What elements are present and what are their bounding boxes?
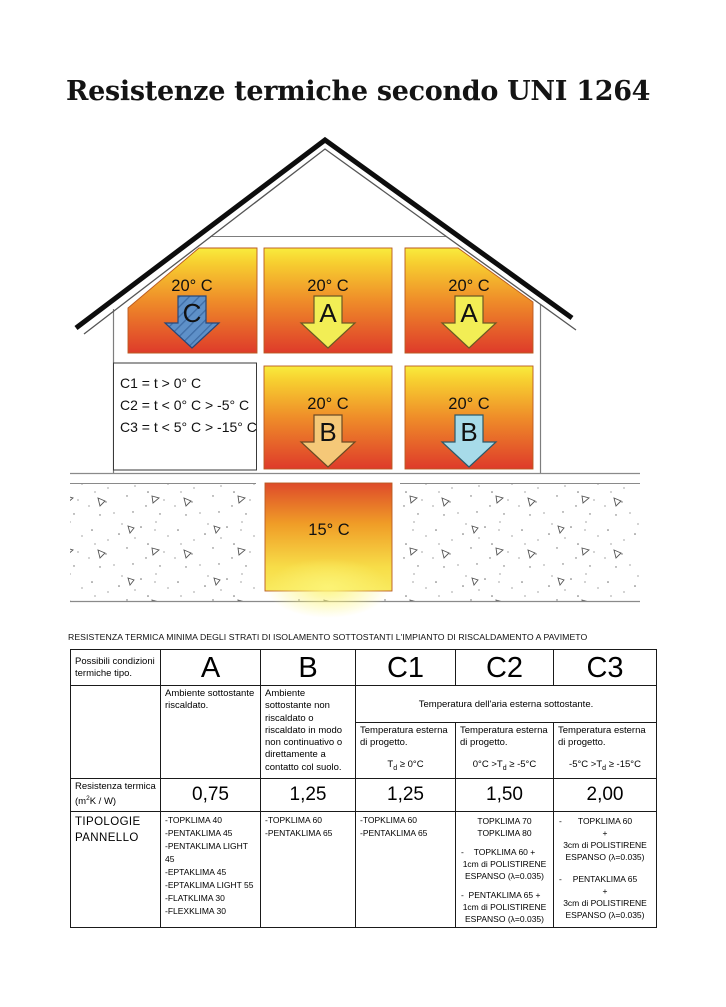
arrow-a1-letter: A	[319, 298, 337, 328]
list-line: -FLATKLIMA 30	[165, 892, 256, 905]
list-line: ESPANSO (λ=0.035)	[558, 909, 652, 921]
legend-line-c2: C2 = t < 0° C > -5° C	[120, 397, 249, 413]
resistance-table: Possibili condizioni termiche tipo. A B …	[70, 649, 657, 928]
temp-mid-right: 20° C	[448, 395, 490, 413]
list-line: +	[558, 885, 652, 897]
list-line: ESPANSO (λ=0.035)	[460, 913, 549, 925]
condition-b: Ambiente sottostante non riscaldato o ri…	[261, 686, 356, 779]
typologies-c3: - TOPKLIMA 60+3cm di POLISTIRENEESPANSO …	[554, 812, 657, 928]
cellar-temp-label: 15° C	[308, 521, 350, 539]
list-line: TOPKLIMA 70	[460, 815, 549, 827]
c3-label: Temperatura esterna di progetto.	[558, 725, 652, 749]
list-line: 3cm di POLISTIRENE	[558, 897, 652, 909]
condition-c3: Temperatura esterna di progetto. -5°C >T…	[554, 723, 657, 779]
list-line: TOPKLIMA 60 +	[460, 846, 549, 858]
group-dash: -	[559, 815, 562, 827]
list-line: +	[558, 827, 652, 839]
c1-label: Temperatura esterna di progetto.	[360, 725, 451, 749]
column-header-a: A	[161, 650, 261, 686]
typologies-b: -TOPKLIMA 60-PENTAKLIMA 65	[261, 812, 356, 928]
list-line: -PENTAKLIMA 65	[360, 827, 451, 840]
resistance-value-a: 0,75	[161, 779, 261, 812]
list-line: PENTAKLIMA 65	[558, 873, 652, 885]
temp-top-left: 20° C	[171, 277, 213, 295]
list-line: TOPKLIMA 80	[460, 827, 549, 839]
table-caption: RESISTENZA TERMICA MINIMA DEGLI STRATI D…	[68, 632, 668, 642]
arrow-b1-letter: B	[319, 417, 336, 447]
typologies-label: TIPOLOGIE PANNELLO	[71, 812, 161, 928]
condition-c1: Temperatura esterna di progetto. Td ≥ 0°…	[356, 723, 456, 779]
c2-label: Temperatura esterna di progetto.	[460, 725, 549, 749]
panel-group: TOPKLIMA 70TOPKLIMA 80	[460, 815, 549, 839]
list-line: -PENTAKLIMA 65	[265, 827, 351, 840]
condition-c-header: Temperatura dell'aria esterna sottostant…	[356, 686, 657, 723]
list-line: TOPKLIMA 60	[558, 815, 652, 827]
list-line: 3cm di POLISTIRENE	[558, 839, 652, 851]
list-line: -PENTAKLIMA LIGHT 45	[165, 840, 256, 866]
condition-a: Ambiente sottostante riscaldato.	[161, 686, 261, 779]
legend-line-c3: C3 = t < 5° C > -15° C	[120, 419, 257, 435]
list-line: 1cm di POLISTIRENE	[460, 858, 549, 870]
temp-top-middle: 20° C	[307, 277, 349, 295]
typologies-a: -TOPKLIMA 40-PENTAKLIMA 45-PENTAKLIMA LI…	[161, 812, 261, 928]
c2-formula: 0°C >Td ≥ -5°C	[460, 759, 549, 775]
group-dash: -	[559, 873, 562, 885]
list-line: ESPANSO (λ=0.035)	[460, 870, 549, 882]
typologies-c1: -TOPKLIMA 60-PENTAKLIMA 65	[356, 812, 456, 928]
empty-cell	[71, 686, 161, 779]
list-line: -EPTAKLIMA 45	[165, 866, 256, 879]
resistance-value-b: 1,25	[261, 779, 356, 812]
cellar-glow	[266, 558, 390, 618]
arrow-a2-letter: A	[460, 298, 478, 328]
legend-line-c1: C1 = t > 0° C	[120, 375, 201, 391]
resistance-value-c1: 1,25	[356, 779, 456, 812]
list-line: -TOPKLIMA 60	[360, 814, 451, 827]
c1-formula: Td ≥ 0°C	[360, 759, 451, 775]
column-header-c3: C3	[554, 650, 657, 686]
list-line: -EPTAKLIMA LIGHT 55	[165, 879, 256, 892]
resistance-value-c2: 1,50	[456, 779, 554, 812]
panel-group: - TOPKLIMA 60+3cm di POLISTIRENEESPANSO …	[558, 815, 652, 863]
column-header-c1: C1	[356, 650, 456, 686]
temp-mid-middle: 20° C	[307, 395, 349, 413]
panel-group: - PENTAKLIMA 65+3cm di POLISTIRENEESPANS…	[558, 873, 652, 921]
list-line: -PENTAKLIMA 45	[165, 827, 256, 840]
list-line: 1cm di POLISTIRENE	[460, 901, 549, 913]
typologies-c2: TOPKLIMA 70TOPKLIMA 80 - TOPKLIMA 60 +1c…	[456, 812, 554, 928]
panel-group: - PENTAKLIMA 65 +1cm di POLISTIRENEESPAN…	[460, 889, 549, 925]
list-line: ESPANSO (λ=0.035)	[558, 851, 652, 863]
group-dash: -	[461, 889, 464, 901]
list-line: -TOPKLIMA 60	[265, 814, 351, 827]
arrow-c-letter: C	[183, 298, 202, 328]
arrow-b2-letter: B	[460, 417, 477, 447]
header-label: Possibili condizioni termiche tipo.	[71, 650, 161, 686]
condition-c2: Temperatura esterna di progetto. 0°C >Td…	[456, 723, 554, 779]
list-line: -TOPKLIMA 40	[165, 814, 256, 827]
resistance-value-c3: 2,00	[554, 779, 657, 812]
c3-formula: -5°C >Td ≥ -15°C	[558, 759, 652, 775]
list-line: PENTAKLIMA 65 +	[460, 889, 549, 901]
panel-group: - TOPKLIMA 60 +1cm di POLISTIRENEESPANSO…	[460, 846, 549, 882]
list-line: -FLEXKLIMA 30	[165, 905, 256, 918]
group-dash: -	[461, 846, 464, 858]
column-header-c2: C2	[456, 650, 554, 686]
document-page: Resistenze termiche secondo UNI 1264	[0, 0, 726, 1007]
temp-top-right: 20° C	[448, 277, 490, 295]
column-header-b: B	[261, 650, 356, 686]
house-section-diagram: 15° C C1 = t > 0° C C2 = t < 0° C > -5° …	[0, 0, 726, 620]
resistance-label: Resistenza termica (m2K / W)	[71, 779, 161, 812]
